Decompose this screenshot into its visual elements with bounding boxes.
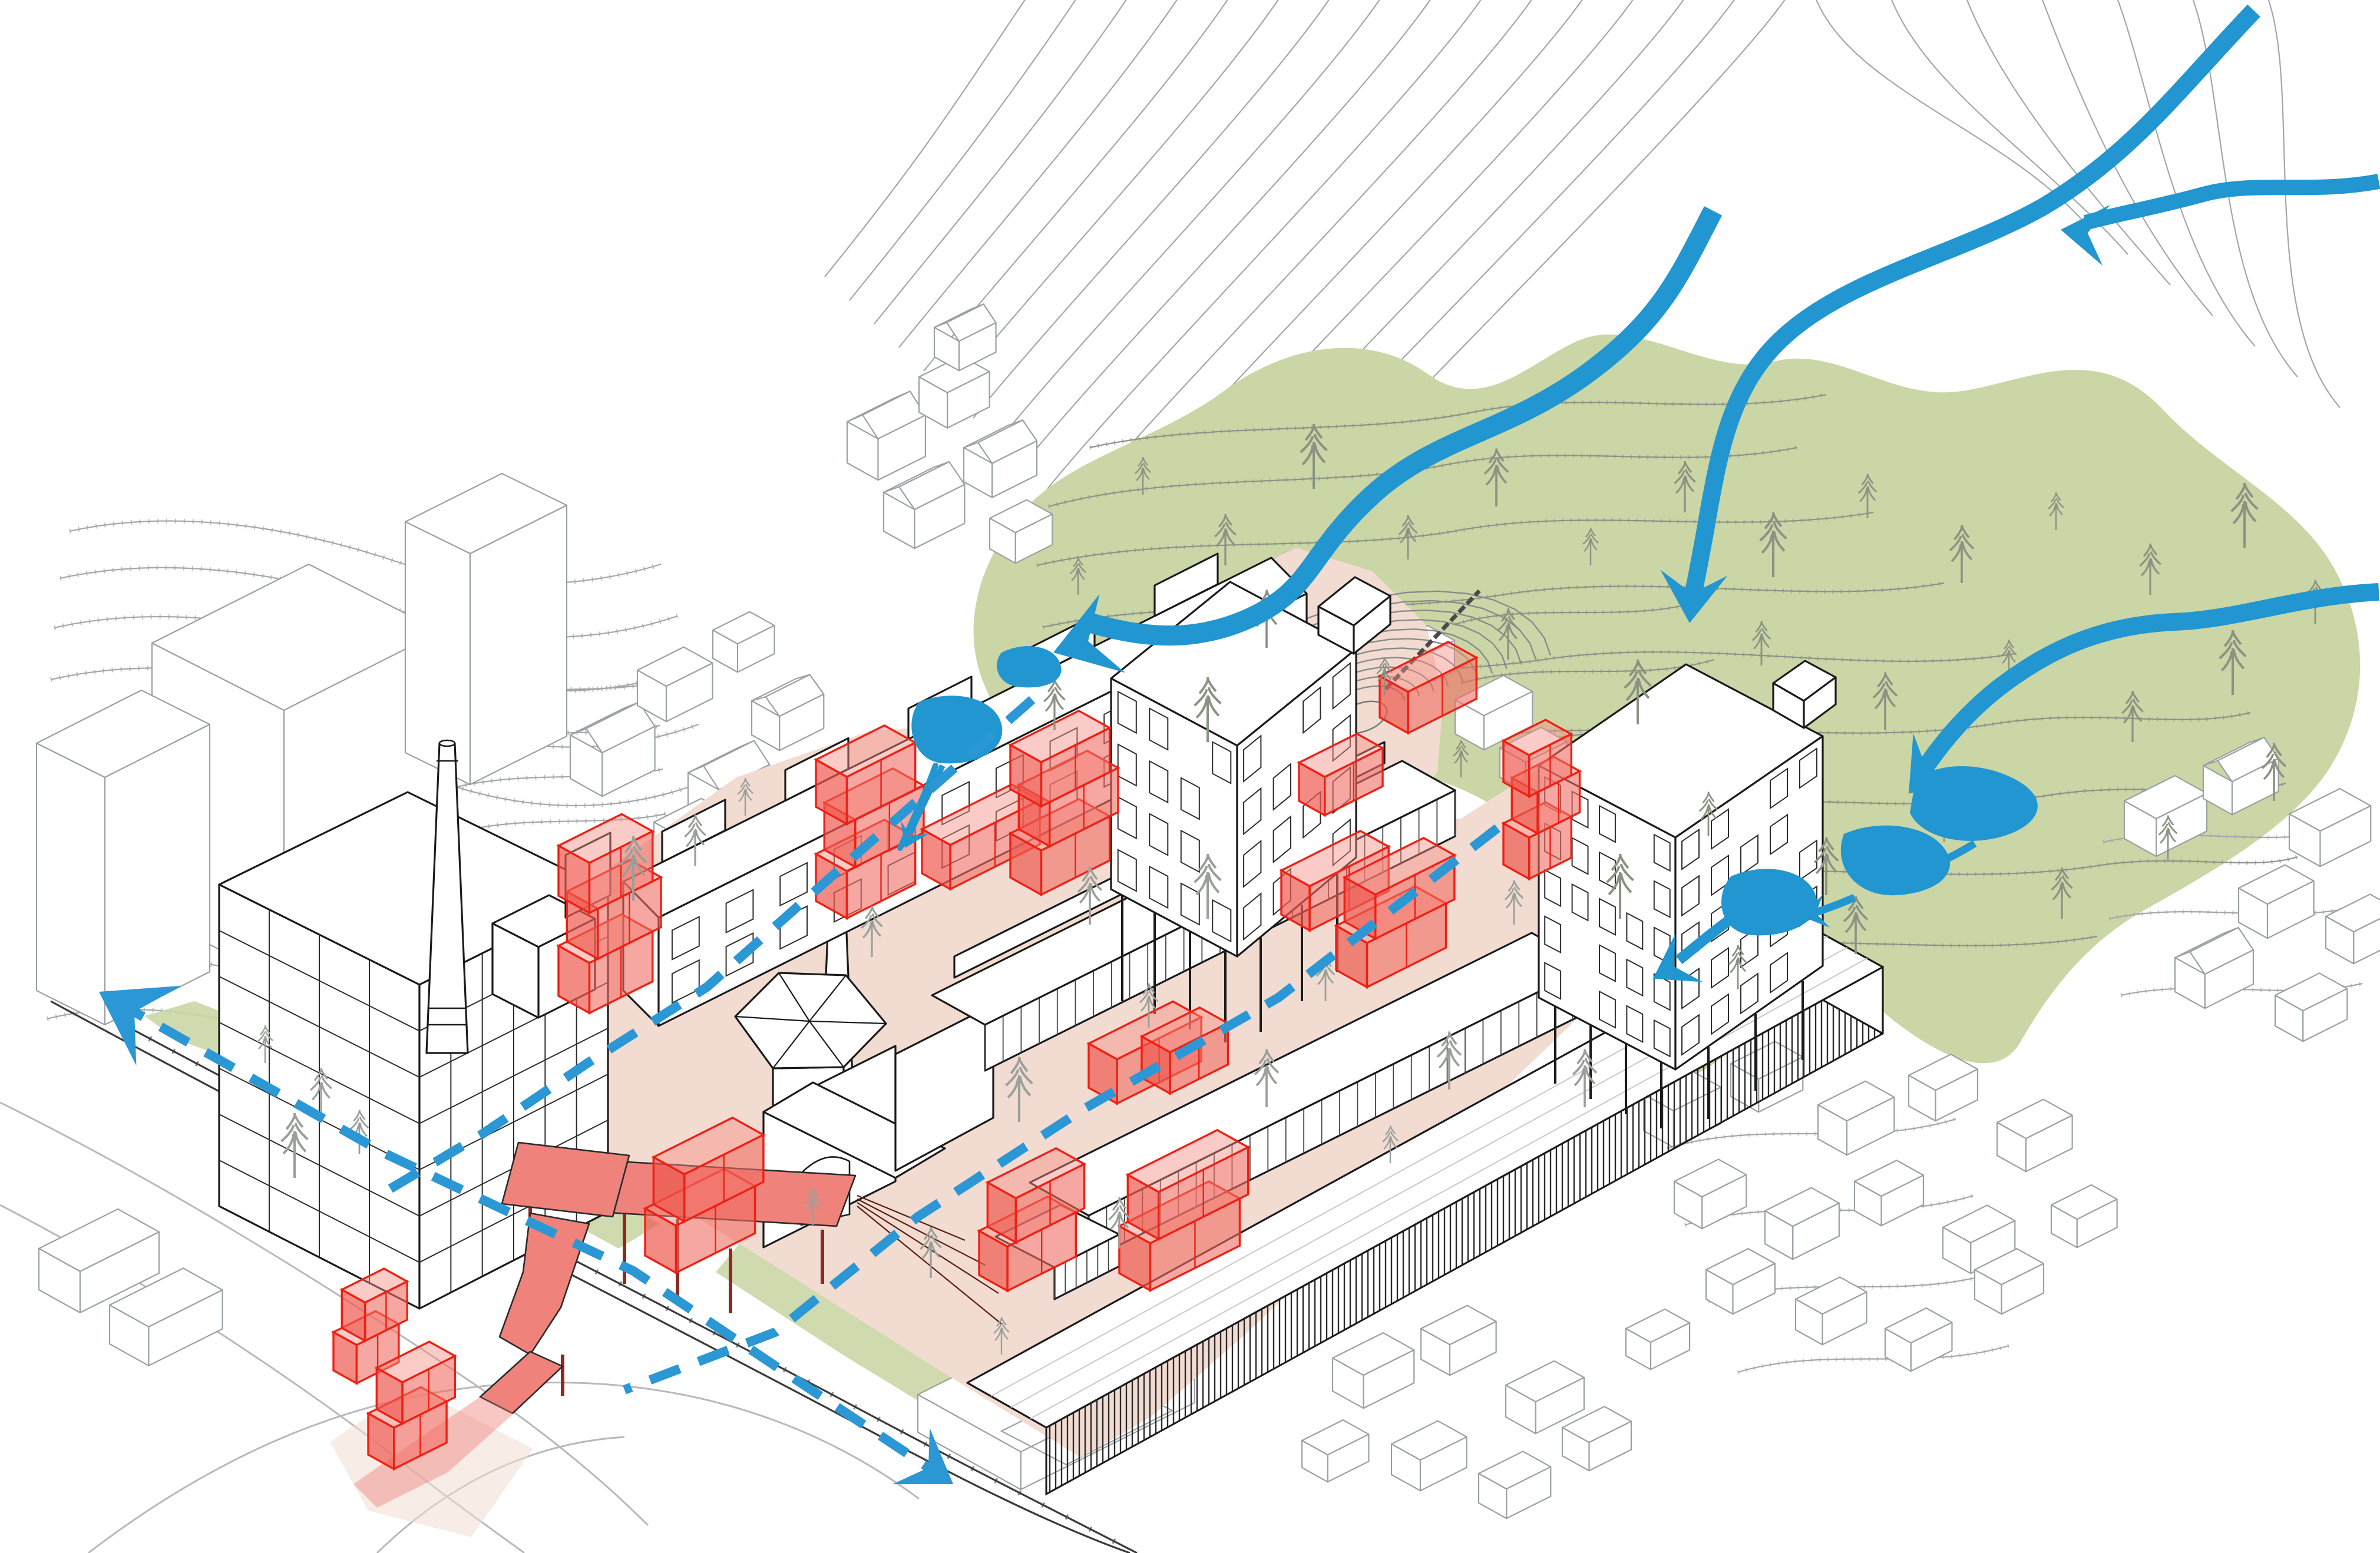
red-container-box	[558, 814, 661, 1013]
context-house	[847, 391, 925, 480]
context-house	[752, 675, 824, 751]
context-house	[1674, 1159, 1746, 1229]
context-house	[1818, 1081, 1894, 1155]
context-house	[1333, 1333, 1414, 1408]
context-house	[2175, 928, 2253, 1008]
context-house	[1562, 1406, 1631, 1471]
context-house	[2239, 865, 2314, 939]
terrain-contour	[874, 0, 1129, 324]
terrain-contour	[2267, 0, 2340, 408]
context-house	[1421, 1306, 1496, 1376]
context-house	[964, 420, 1037, 497]
context-house	[1765, 1188, 1839, 1260]
context-house	[2275, 973, 2347, 1041]
context-house	[1391, 1421, 1467, 1491]
context-house	[884, 462, 964, 548]
context-house	[1706, 1249, 1775, 1314]
terrain-contour	[2116, 0, 2255, 346]
axonometric-scene	[0, 0, 2380, 1553]
context-house	[2051, 1185, 2117, 1247]
context-house	[1997, 1100, 2072, 1172]
context-house	[1626, 1309, 1690, 1369]
context-tower	[405, 473, 567, 784]
terrace-wall	[1738, 1346, 2009, 1372]
terrain-contour	[973, 0, 1332, 418]
context-tower	[37, 690, 210, 1025]
context-house	[1479, 1451, 1551, 1518]
terrain-contour	[2041, 0, 2213, 316]
context-house	[2326, 894, 2380, 963]
context-house	[1855, 1160, 1923, 1226]
terrace-wall	[70, 521, 661, 584]
terrain-contour	[849, 0, 1079, 300]
terrain-contour	[1814, 0, 2085, 224]
context-house	[637, 647, 713, 722]
wind-arrow-right-1-head	[2061, 205, 2110, 266]
context-house	[934, 304, 996, 370]
context-house	[1909, 1054, 1978, 1121]
red-container-box	[1503, 720, 1580, 879]
context-house	[1302, 1420, 1368, 1482]
terrain-contour	[825, 0, 1028, 277]
masterplan-diagram	[0, 0, 2380, 1553]
context-house	[713, 612, 775, 673]
context-house	[1885, 1308, 1952, 1371]
context-house	[570, 702, 655, 796]
